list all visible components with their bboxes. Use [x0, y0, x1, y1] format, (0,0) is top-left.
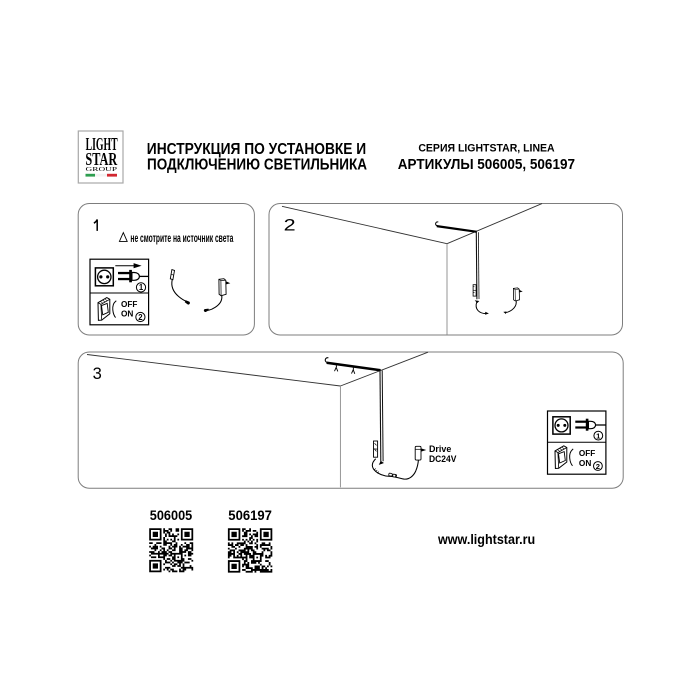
svg-text:GROUP: GROUP [86, 166, 118, 173]
svg-text:СЕРИЯ LIGHTSTAR, LINEA: СЕРИЯ LIGHTSTAR, LINEA [418, 143, 554, 155]
svg-text:OFF: OFF [121, 299, 137, 309]
svg-text:не смотрите на источник света: не смотрите на источник света [130, 231, 233, 245]
svg-text:АРТИКУЛЫ 506005, 506197: АРТИКУЛЫ 506005, 506197 [398, 157, 575, 173]
svg-text:ON: ON [121, 309, 133, 319]
svg-text:www.lightstar.ru: www.lightstar.ru [437, 532, 535, 547]
svg-text:506197: 506197 [228, 507, 272, 523]
svg-text:2: 2 [138, 313, 143, 322]
svg-text:ИНСТРУКЦИЯ ПО УСТАНОВКЕ И: ИНСТРУКЦИЯ ПО УСТАНОВКЕ И [147, 141, 366, 158]
svg-text:1: 1 [139, 283, 144, 292]
svg-text:2: 2 [284, 216, 296, 234]
svg-text:ON: ON [579, 458, 591, 468]
svg-text:3: 3 [93, 365, 102, 383]
svg-text:2: 2 [596, 462, 600, 471]
svg-text:ПОДКЛЮЧЕНИЮ СВЕТИЛЬНИКА: ПОДКЛЮЧЕНИЮ СВЕТИЛЬНИКА [147, 156, 367, 173]
svg-text:506005: 506005 [150, 507, 193, 523]
svg-text:Drive: Drive [429, 444, 451, 454]
svg-text:DC24V: DC24V [429, 454, 457, 464]
svg-text:OFF: OFF [579, 448, 595, 458]
